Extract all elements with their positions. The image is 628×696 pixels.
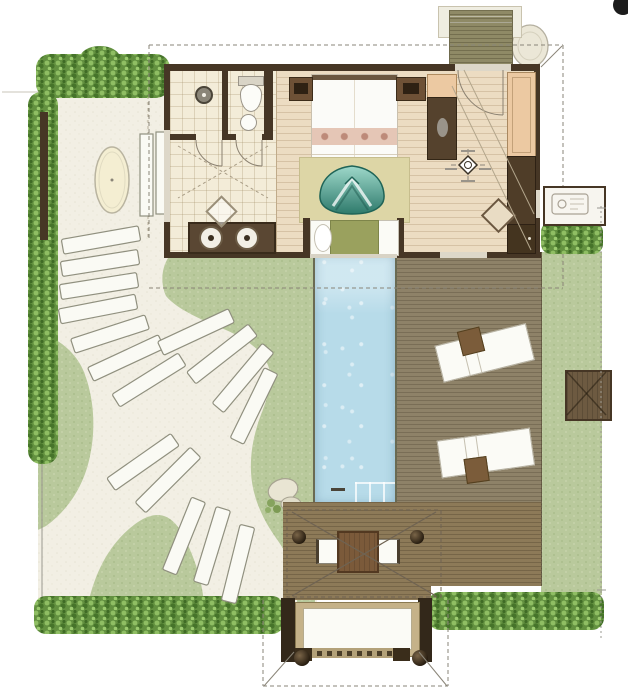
- stall-wall: [170, 134, 196, 140]
- double-bed: [311, 74, 398, 159]
- lap-pool: [313, 252, 397, 506]
- cabinet-dark: [507, 224, 536, 254]
- basin-drain: [244, 235, 250, 241]
- floor-plan-canvas: [0, 0, 628, 696]
- bay-wall: [303, 218, 310, 258]
- glass-door-deck: [440, 252, 487, 258]
- gate-landing: [303, 608, 412, 650]
- bed-center-seam: [354, 80, 355, 158]
- gate-post: [412, 650, 428, 666]
- bay-window-sill: [310, 254, 397, 258]
- hedge-top-left: [36, 46, 170, 98]
- towel-block: [464, 456, 490, 484]
- entry-deck: [449, 10, 513, 64]
- entry-step-line: [450, 22, 512, 23]
- toilet-bowl: [240, 84, 262, 112]
- basin-drain: [208, 235, 214, 241]
- shower-head-icon: [195, 86, 213, 104]
- stall-divider: [222, 70, 228, 140]
- gate-pylon-left: [281, 598, 295, 662]
- wc-basin-icon: [240, 114, 257, 131]
- hedge-bottom-right: [428, 592, 604, 630]
- wardrobe-top: [427, 74, 457, 99]
- stall-wall: [262, 134, 273, 140]
- vanity-counter: [188, 222, 276, 254]
- window-daybed: [330, 220, 379, 258]
- wall-top: [164, 64, 455, 71]
- stone-bath-oval: [95, 147, 129, 213]
- hedge-right-short: [541, 222, 603, 254]
- closet-tan: [507, 72, 536, 158]
- lawn-right-strip: [541, 252, 602, 595]
- wardrobe: [427, 97, 457, 160]
- pavilion-post: [410, 530, 424, 544]
- side-platform: [565, 370, 612, 421]
- nightstand: [289, 77, 313, 101]
- stall-divider: [264, 70, 273, 140]
- bed-rug: [299, 157, 410, 223]
- toilet-icon: [236, 76, 264, 112]
- bed-runner: [312, 128, 397, 145]
- gate-step-treads: [317, 651, 395, 656]
- floor-transition-line: [276, 70, 277, 252]
- daybed-roll-cushion: [314, 224, 332, 252]
- gate-base-block: [393, 648, 410, 661]
- pavilion-post: [292, 530, 306, 544]
- wardrobe-bag: [437, 118, 448, 137]
- lower-deck-tongue: [283, 586, 431, 600]
- utility-room: [543, 186, 606, 226]
- stall-wall: [228, 134, 236, 140]
- gate-post: [294, 650, 310, 666]
- closet-inner-line: [512, 77, 531, 153]
- hedge-bottom-left: [34, 596, 284, 634]
- dining-table: [337, 531, 379, 573]
- pool-grab-bar: [331, 488, 345, 491]
- bed-foot-line: [312, 154, 397, 155]
- entry-step-line: [450, 16, 512, 17]
- courtyard-privacy-wall: [40, 112, 48, 240]
- garden-bench: [140, 134, 153, 216]
- nightstand-tray: [403, 83, 419, 94]
- entry-door-threshold: [455, 64, 511, 71]
- basin-icon: [235, 226, 259, 250]
- window-left: [164, 130, 170, 222]
- cabinet-knob: [528, 237, 531, 240]
- nightstand: [396, 77, 426, 101]
- basin-icon: [199, 226, 223, 250]
- daybed-pillow: [377, 220, 399, 256]
- nightstand-tray: [294, 83, 308, 94]
- shower-head-dot: [202, 93, 206, 97]
